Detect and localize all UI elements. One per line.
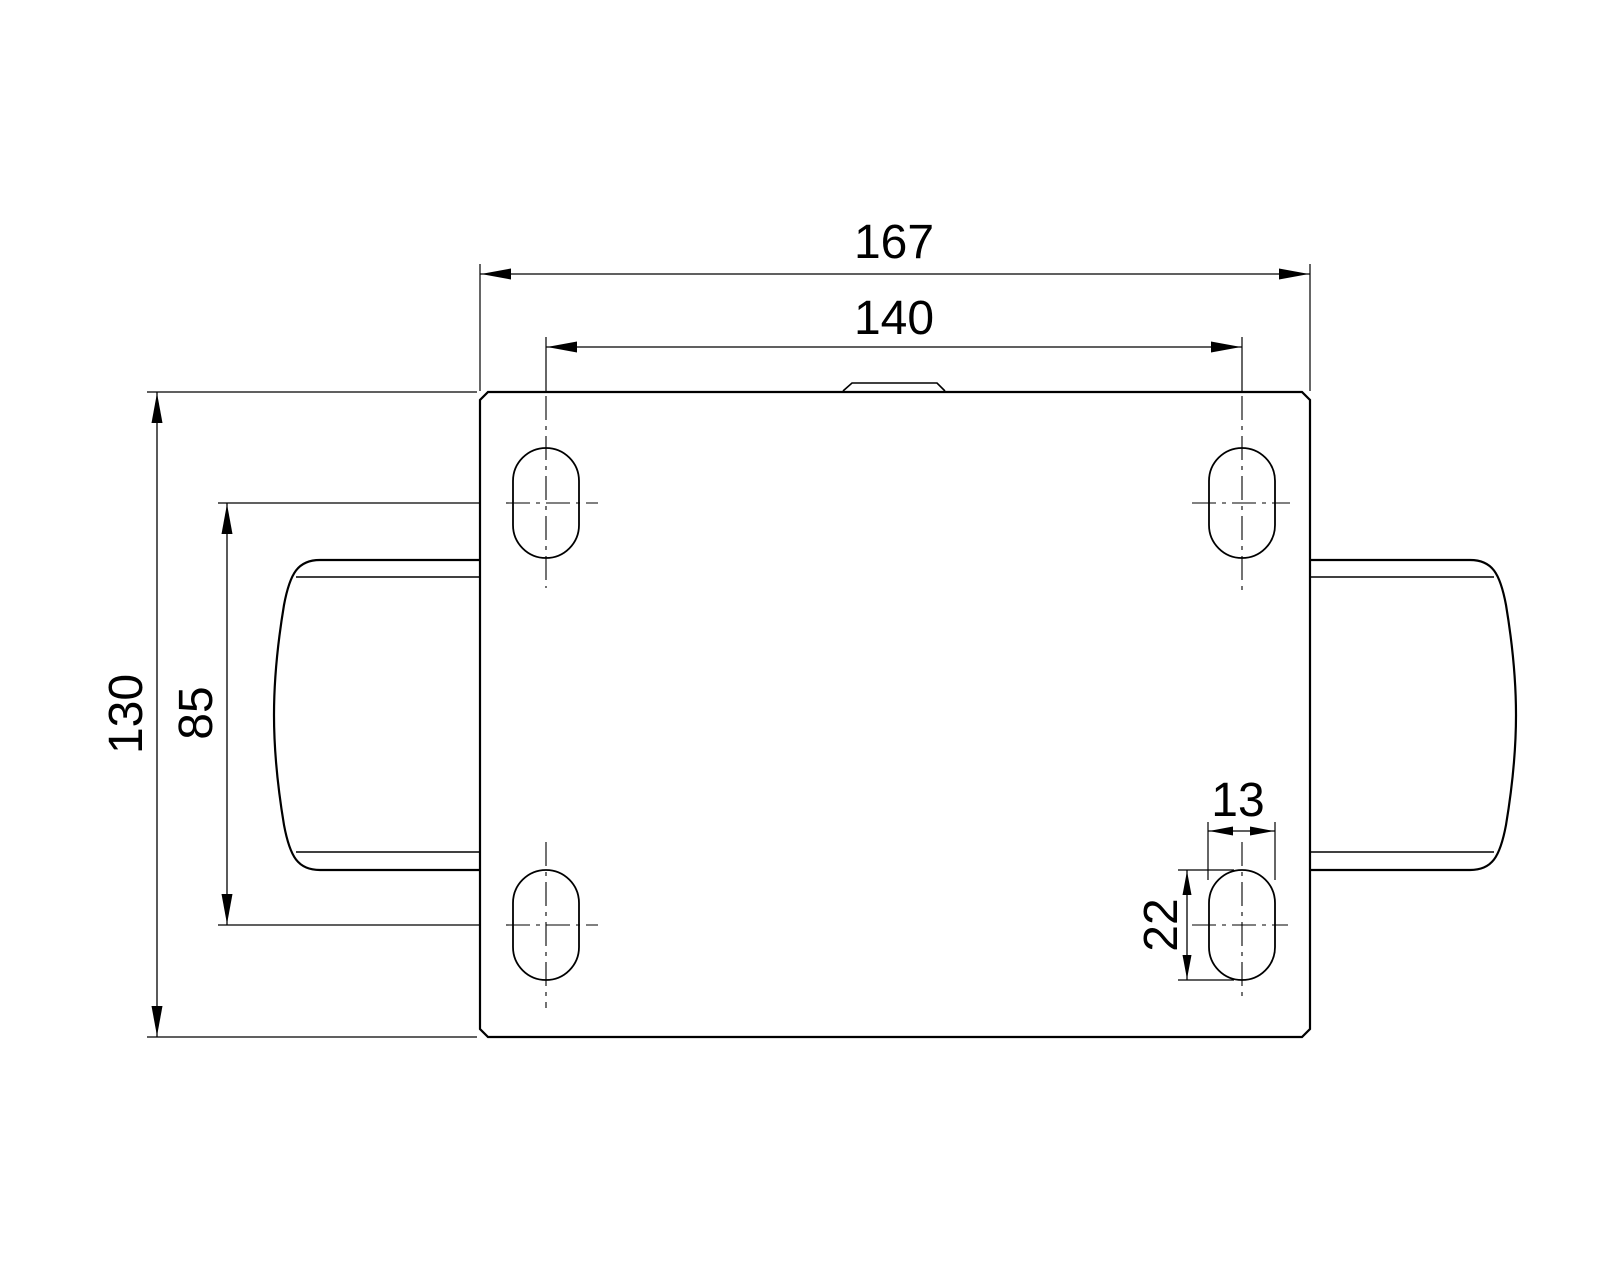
dim-label-slot-length: 22: [1135, 898, 1188, 951]
drawing-canvas: 167 140 130 85 13: [0, 0, 1600, 1280]
dimension-hole-spacing-width: 140: [546, 292, 1242, 392]
arrowhead-bottom-icon: [152, 1006, 163, 1036]
arrowhead-right-icon: [1279, 269, 1309, 280]
dim-label-plate-depth: 130: [100, 674, 153, 754]
arrowhead-bottom-icon: [1183, 955, 1192, 979]
top-tab: [843, 383, 945, 391]
left-wheel-outline: [274, 560, 480, 870]
arrowhead-left-icon: [481, 269, 511, 280]
dim-label-hole-spacing-depth: 85: [170, 686, 223, 739]
right-wheel-outline: [1310, 560, 1516, 870]
arrowhead-top-icon: [152, 393, 163, 423]
dimension-hole-spacing-depth: 85: [170, 503, 479, 925]
arrowhead-right-icon: [1211, 342, 1241, 353]
dim-label-plate-width: 167: [854, 216, 934, 269]
dimension-plate-depth: 130: [100, 392, 477, 1037]
dimension-slot-length: 22: [1135, 870, 1234, 980]
right-wheel: [1310, 560, 1516, 870]
arrowhead-right-icon: [1250, 827, 1274, 836]
arrowhead-left-icon: [1209, 827, 1233, 836]
dim-label-hole-spacing-width: 140: [854, 292, 934, 345]
arrowhead-top-icon: [222, 504, 233, 534]
dim-label-slot-width: 13: [1211, 774, 1264, 827]
arrowhead-top-icon: [1183, 871, 1192, 895]
arrowhead-bottom-icon: [222, 894, 233, 924]
arrowhead-left-icon: [547, 342, 577, 353]
technical-drawing: 167 140 130 85 13: [0, 0, 1600, 1280]
left-wheel: [274, 560, 480, 870]
